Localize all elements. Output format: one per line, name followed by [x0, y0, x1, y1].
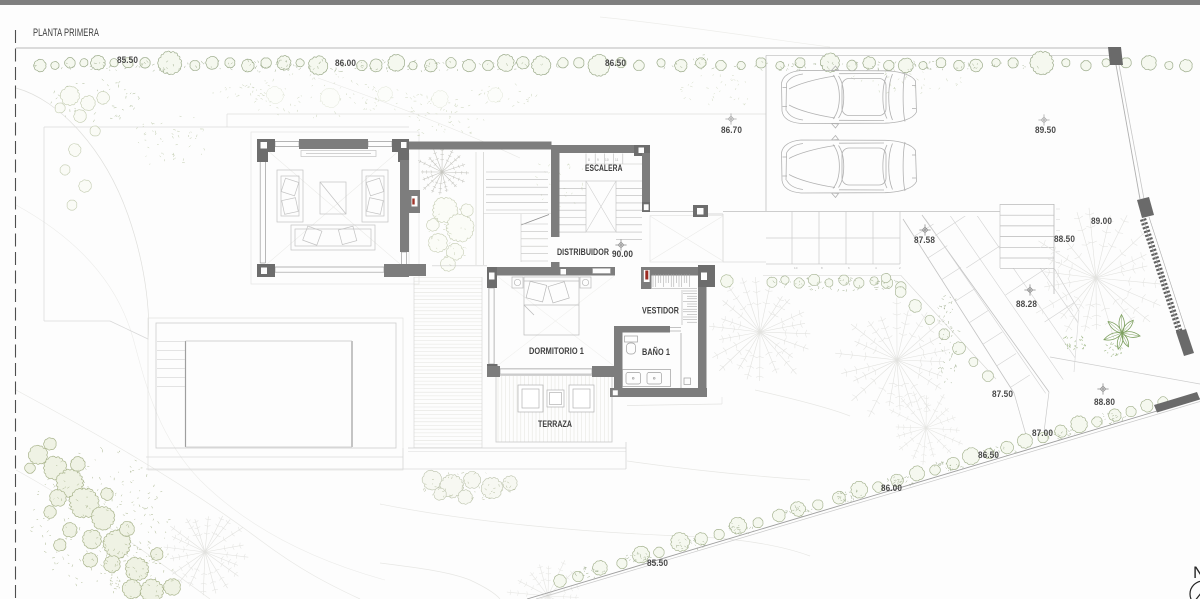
svg-text:DISTRIBUIDOR: DISTRIBUIDOR: [557, 247, 609, 258]
svg-text:ESCALERA: ESCALERA: [585, 163, 623, 174]
svg-text:85.50: 85.50: [647, 558, 668, 568]
svg-text:86.00: 86.00: [335, 58, 356, 68]
svg-text:8: 8: [821, 266, 823, 270]
svg-text:90.00: 90.00: [612, 249, 633, 259]
svg-text:10: 10: [605, 158, 609, 162]
svg-text:4: 4: [875, 266, 877, 270]
svg-text:88.80: 88.80: [1094, 397, 1115, 407]
svg-text:N: N: [1193, 563, 1200, 582]
svg-text:88.28: 88.28: [1016, 299, 1037, 309]
svg-text:PLANTA PRIMERA: PLANTA PRIMERA: [33, 27, 99, 39]
svg-text:DORMITORIO 1: DORMITORIO 1: [529, 346, 584, 357]
svg-text:11: 11: [615, 158, 619, 162]
svg-text:89.00: 89.00: [1091, 216, 1112, 226]
svg-text:87.50: 87.50: [992, 389, 1013, 399]
svg-text:87.00: 87.00: [1032, 428, 1053, 438]
svg-text:86.70: 86.70: [721, 125, 742, 135]
svg-text:9: 9: [597, 158, 599, 162]
svg-text:BAÑO 1: BAÑO 1: [642, 347, 670, 358]
svg-text:86.50: 86.50: [978, 450, 999, 460]
svg-text:86.00: 86.00: [881, 483, 902, 493]
svg-text:2: 2: [899, 266, 901, 270]
svg-text:89.50: 89.50: [1035, 125, 1056, 135]
svg-text:10: 10: [794, 266, 798, 270]
svg-text:6: 6: [848, 266, 850, 270]
svg-text:TERRAZA: TERRAZA: [538, 419, 572, 430]
svg-text:86.50: 86.50: [605, 58, 626, 68]
svg-text:8: 8: [588, 158, 590, 162]
svg-text:87.58: 87.58: [914, 235, 935, 245]
svg-text:88.50: 88.50: [1054, 234, 1075, 244]
svg-text:VESTIDOR: VESTIDOR: [642, 306, 679, 317]
svg-text:85.50: 85.50: [117, 55, 138, 65]
